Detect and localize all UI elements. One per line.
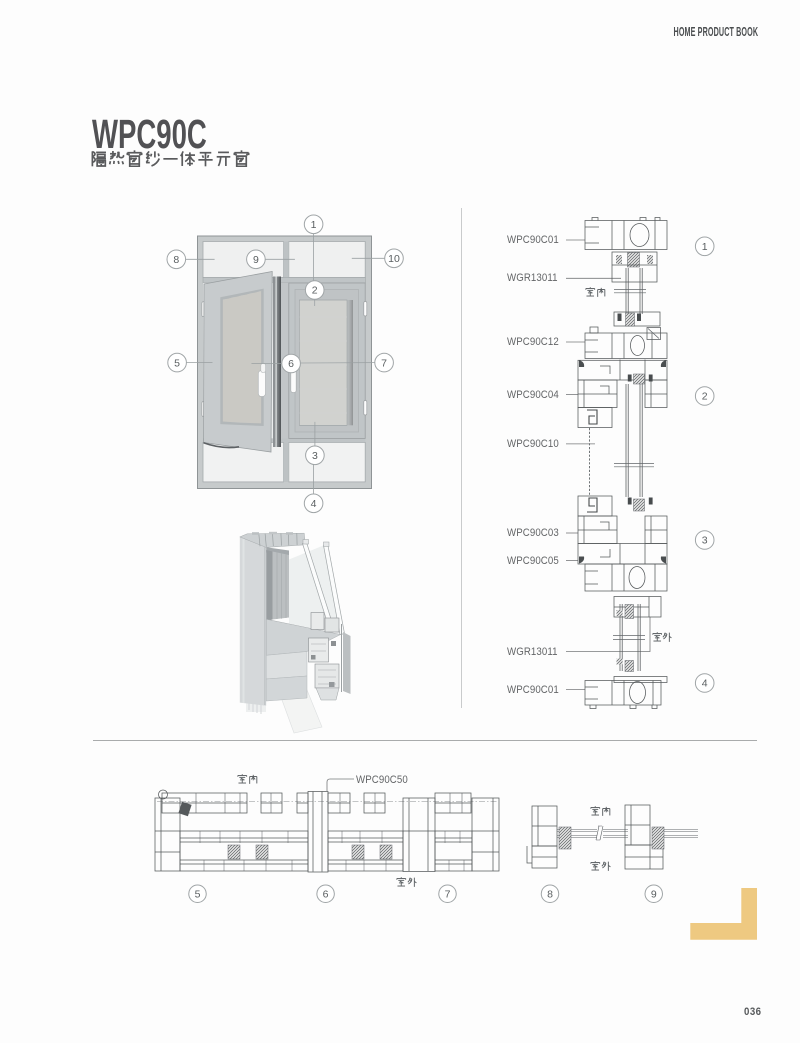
svg-text:2: 2 — [312, 285, 318, 297]
svg-text:3: 3 — [702, 535, 708, 547]
svg-text:9: 9 — [651, 888, 657, 900]
svg-text:8: 8 — [173, 254, 179, 266]
svg-text:7: 7 — [445, 888, 451, 900]
svg-text:1: 1 — [702, 241, 708, 253]
svg-text:5: 5 — [174, 357, 180, 369]
svg-text:10: 10 — [388, 253, 400, 265]
svg-text:9: 9 — [253, 254, 259, 266]
svg-text:7: 7 — [381, 357, 387, 369]
svg-text:4: 4 — [702, 678, 708, 690]
svg-text:4: 4 — [311, 498, 317, 510]
svg-text:6: 6 — [323, 888, 329, 900]
svg-text:1: 1 — [311, 219, 317, 231]
svg-text:3: 3 — [312, 450, 318, 462]
svg-text:6: 6 — [288, 358, 294, 370]
svg-text:8: 8 — [547, 888, 553, 900]
svg-text:5: 5 — [195, 888, 201, 900]
svg-text:2: 2 — [702, 391, 708, 403]
